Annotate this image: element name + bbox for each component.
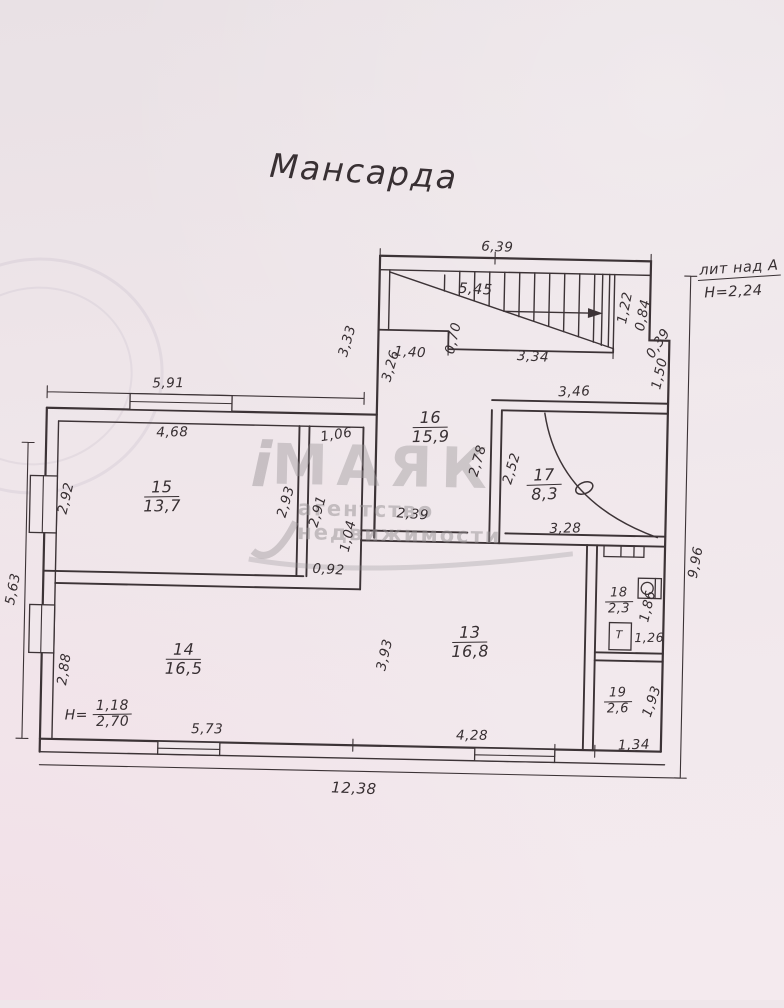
room-17-label: 17 8,3 — [526, 466, 563, 505]
room-15-area: 13,7 — [143, 497, 181, 516]
room-14-label: 14 16,5 — [165, 641, 203, 679]
height-high: 2,70 — [96, 715, 129, 731]
dim-328: 3,28 — [549, 520, 581, 536]
dim-1238: 12,38 — [331, 778, 377, 798]
toilet-fixture-letter: Т — [615, 628, 623, 641]
room-15-label: 15 13,7 — [143, 478, 181, 516]
dim-239: 2,39 — [396, 505, 429, 523]
room-13-label: 13 16,8 — [451, 624, 489, 662]
room-14-number: 14 — [166, 641, 201, 661]
room-19-area: 2,6 — [607, 702, 629, 717]
dim-573: 5,73 — [191, 721, 223, 737]
room-19-label: 19 2,6 — [604, 686, 632, 717]
stair-direction-arrow — [588, 308, 603, 318]
dim-334: 3,34 — [517, 348, 550, 366]
dim-545: 5,45 — [458, 281, 493, 299]
height-low: 1,18 — [93, 699, 132, 716]
floor-plan-linework — [0, 0, 784, 1008]
dim-126: 1,26 — [634, 630, 664, 645]
room-14-area: 16,5 — [165, 660, 203, 679]
room-17-number: 17 — [526, 466, 562, 486]
room-14-height-note: Н= 1,18 2,70 — [64, 699, 132, 732]
room-13-number: 13 — [452, 624, 488, 644]
room-17-area: 8,3 — [531, 485, 559, 504]
dim-591: 5,91 — [152, 375, 184, 391]
dim-092: 0,92 — [312, 561, 345, 579]
dim-346: 3,46 — [558, 383, 591, 400]
dim-134: 1,34 — [618, 737, 651, 754]
room-18-area: 2,3 — [608, 602, 630, 617]
dim-428: 4,28 — [456, 728, 488, 744]
room-18-label: 18 2,3 — [605, 586, 633, 617]
height-prefix: Н= — [65, 707, 88, 723]
room-16-label: 16 15,9 — [411, 409, 449, 447]
room-19-number: 19 — [604, 686, 632, 702]
scanned-floor-plan-page: i МАЯК агентство недвижимости Мансарда л… — [0, 0, 784, 1000]
dim-468: 4,68 — [156, 424, 188, 440]
room-15-number: 15 — [144, 478, 180, 498]
dim-639: 6,39 — [481, 239, 514, 256]
room-13-area: 16,8 — [451, 643, 489, 662]
room-16-number: 16 — [413, 409, 449, 429]
room-16-area: 15,9 — [412, 428, 450, 447]
building-height-note: Н=2,24 — [704, 283, 763, 302]
floor-plan-sheet: i МАЯК агентство недвижимости Мансарда л… — [0, 0, 784, 1008]
room-18-number: 18 — [605, 586, 633, 602]
